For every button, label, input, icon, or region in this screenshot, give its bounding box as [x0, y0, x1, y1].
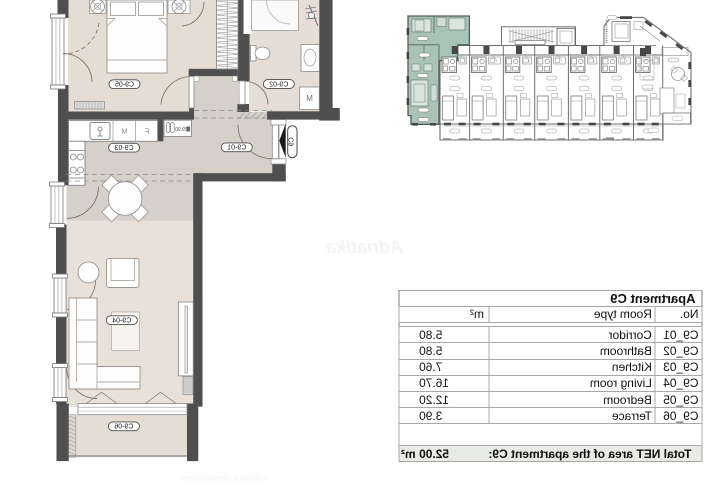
svg-text:M: M: [306, 94, 313, 103]
svg-text:C9-04: C9-04: [112, 318, 131, 325]
svg-text:C9-06: C9-06: [114, 424, 133, 431]
svg-text:29.90: 29.90: [175, 127, 188, 133]
svg-text:M: M: [121, 127, 127, 136]
svg-text:C9-01: C9-01: [227, 145, 246, 152]
svg-text:C9-05: C9-05: [115, 82, 134, 89]
svg-text:F: F: [144, 127, 149, 136]
svg-text:C9-03: C9-03: [114, 145, 133, 152]
svg-text:C9-02: C9-02: [269, 81, 288, 88]
svg-text:C9: C9: [289, 137, 296, 146]
